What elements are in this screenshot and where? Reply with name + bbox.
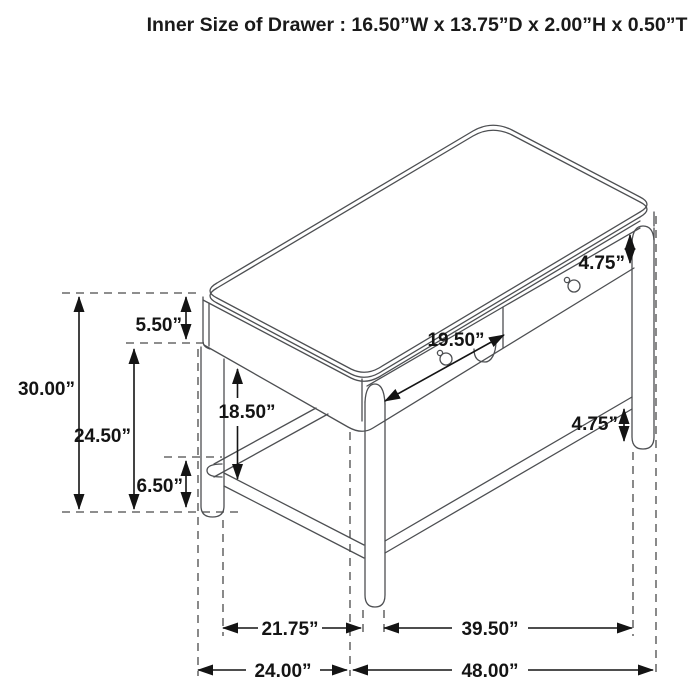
dim-right-span-label: 39.50” — [461, 619, 518, 640]
dim-overall-width-label: 48.00” — [461, 661, 518, 682]
left-side-stretcher-bar — [224, 473, 364, 558]
dim-top-to-apron: 5.50” — [136, 297, 186, 339]
left-front-leg — [201, 347, 224, 517]
dim-left-span-label: 21.75” — [261, 619, 318, 640]
dim-floor-to-apron: 24.50” — [74, 349, 134, 509]
right-leg — [632, 228, 654, 449]
dim-right-span: 39.50” — [384, 619, 632, 640]
dim-overall-depth: 24.00” — [198, 661, 347, 682]
drawer-knob-right — [564, 277, 580, 292]
desk-dimension-diagram: 30.00” 24.50” 5.50” 6.50” 18.50” 4.75” 4… — [0, 0, 700, 700]
dim-top-to-apron-label: 5.50” — [136, 315, 182, 336]
desk-front-edge-band — [203, 221, 640, 381]
desk-line-art — [201, 125, 654, 607]
dim-overall-depth-label: 24.00” — [254, 661, 311, 682]
dim-overall-width: 48.00” — [353, 661, 653, 682]
page-title: Inner Size of Drawer : 16.50”W x 13.75”D… — [147, 14, 688, 36]
dim-overall-height: 30.00” — [18, 297, 79, 509]
drawer-knob-left — [437, 350, 452, 365]
dim-floor-to-stretcher-label: 6.50” — [137, 476, 183, 497]
dim-floor-to-stretcher: 6.50” — [137, 461, 186, 507]
dim-drawer-opening-width-label: 19.50” — [427, 330, 484, 351]
dim-knee-clearance-label: 18.50” — [218, 402, 275, 423]
center-leg-top-shoulder — [365, 384, 385, 404]
dimension-diagram-page: 30.00” 24.50” 5.50” 6.50” 18.50” 4.75” 4… — [0, 0, 700, 700]
dim-floor-to-apron-label: 24.50” — [74, 426, 131, 447]
dim-drawer-front-height-label: 4.75” — [579, 253, 625, 274]
dim-left-span: 21.75” — [223, 619, 361, 640]
dim-stretcher-to-leg-bottom-label: 4.75” — [572, 414, 618, 435]
dim-drawer-front-height: 4.75” — [579, 235, 630, 274]
center-front-leg — [365, 402, 385, 607]
dim-stretcher-to-leg-bottom: 4.75” — [572, 409, 624, 441]
dim-knee-clearance: 18.50” — [218, 369, 275, 479]
dim-overall-height-label: 30.00” — [18, 379, 75, 400]
extension-lines — [62, 216, 656, 676]
right-leg-top-shoulder — [632, 226, 654, 242]
